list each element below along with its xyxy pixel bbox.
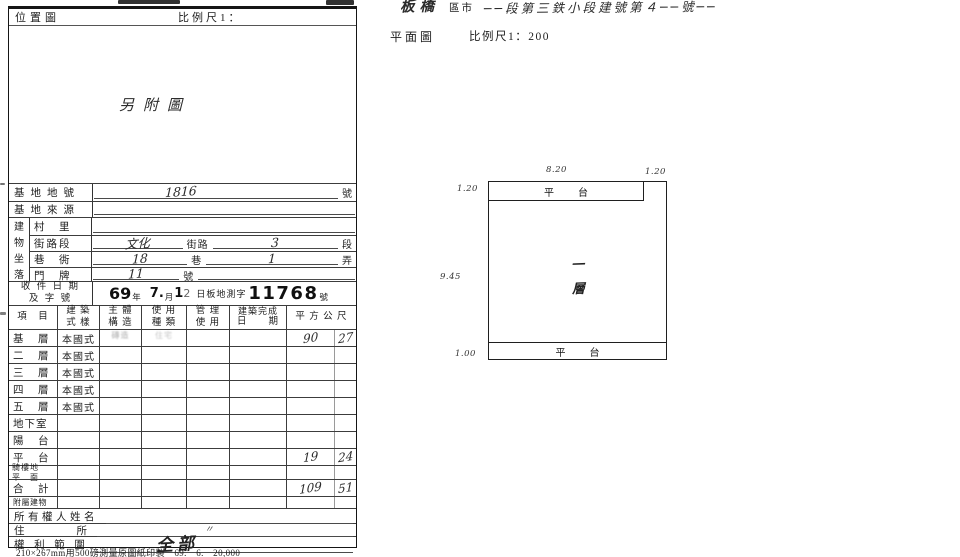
scan-artifact [326,0,354,5]
lane-label: 巷 衖 [30,252,92,267]
empty-cell [99,381,141,397]
floor-plan-label: 平面圖 [390,28,435,45]
empty-cell [229,449,286,465]
faint-stamp: 磚造 [112,330,130,341]
scan-artifact [0,183,5,185]
receipt-value-area: 69 年 7. 月 1 2 日板地測字 11768 號 [93,282,356,305]
street-value-area: 文化 街路 3 段 [92,236,356,251]
street-name-handwritten: 文化 [125,232,151,253]
header-text: 使 用 [152,306,176,317]
empty-cell [286,432,334,448]
empty-cell [186,398,229,414]
fill-in-line [94,202,355,215]
table-row-arcade: 騎樓地平 面 [9,465,356,479]
floor-label-char: 層 [571,278,585,297]
dimension-bottom-strip-height: 1.00 [455,349,476,359]
item-cell: 三 層 [9,364,57,380]
fill-in-line [106,509,353,524]
village-label: 村 里 [30,218,92,235]
owner-name-label: 所有權人姓名 [9,509,98,523]
header-text: 日 期 [237,317,279,328]
empty-cell [186,432,229,448]
building-location-group: 建 物 坐 落 村 里 街路段 文化 街路 3 段 [9,217,356,281]
receipt-label-line1: 收 件 日 期 [21,282,80,294]
style-value: 本國式 [62,399,95,414]
empty-cell [229,347,286,363]
dimension-top-width: 8.20 [546,165,567,175]
empty-cell [286,364,334,380]
street-print-label: 街路 [184,236,212,251]
plan-title-line: 板橋 區市 ──段第三鉄小段建號第４──號── [400,0,718,16]
street-section-unit: 段 [339,236,356,251]
location-map-header-row: 位置圖 比例尺1： [9,9,356,26]
style-cell: 本國式 [57,330,99,346]
top-platform-label: 平 台 [537,184,595,199]
item-cell: 附屬建物 [9,497,57,508]
empty-cell [334,466,356,479]
table-row-floor3: 三 層 本國式 [9,363,356,380]
site-source-value-area [93,202,356,217]
building-location-group-label: 建 物 坐 落 [9,218,30,281]
area-value-handwritten: 90 [303,330,318,347]
location-map-area: 另附圖 [9,26,356,183]
site-source-label: 基地來源 [9,202,93,217]
style-cell: 本國式 [57,364,99,380]
empty-cell [186,330,229,346]
header-text: 項 目 [17,312,49,323]
dimension-top-right-width: 1.20 [645,167,666,177]
header-text: 建 築 [66,306,90,317]
receipt-label: 收 件 日 期 及 字 號 [9,282,93,305]
use-type-cell: 住宅 [141,330,186,346]
empty-cell [99,398,141,414]
header-completion-date: 建築完成日 期 [229,306,286,329]
item-cell: 騎樓地平 面 [9,466,57,479]
fill-in-line: 1 [206,252,338,265]
style-value: 本國式 [62,382,95,397]
empty-cell [286,398,334,414]
empty-cell [99,364,141,380]
scan-artifact [0,312,6,315]
empty-cell [141,381,186,397]
style-value: 本國式 [62,331,95,346]
area-dec-cell: 24 [334,449,356,465]
empty-cell [186,497,229,508]
empty-cell [57,432,99,448]
floor-label-char: 一 [570,254,584,273]
receipt-label-line2: 及 字 號 [29,294,72,306]
item-label: 地下室 [13,416,48,431]
header-square-meters: 平 方 公 尺 [286,306,356,329]
header-management: 管 理使 用 [186,306,229,329]
year-unit: 年 [132,291,141,305]
dimension-top-strip-height: 1.20 [457,184,478,194]
empty-cell [99,466,141,479]
item-label: 騎樓地 [12,463,54,472]
header-text: 主 體 [108,306,132,317]
receipt-row: 收 件 日 期 及 字 號 69 年 7. 月 1 2 日板地測字 11768 … [9,281,356,305]
item-cell: 五 層 [9,398,57,414]
site-lot-value-handwritten: 1816 [165,182,197,199]
floor-plan-drawing: 平 台 一 層 平 台 [488,181,667,360]
lane-value-area: 18 巷 1 弄 [92,252,356,267]
empty-cell [57,480,99,496]
ditto-mark-handwritten: 〃 [205,522,214,535]
fill-in-line: 〃 [97,524,353,537]
empty-cell [99,347,141,363]
area-value-handwritten: 51 [338,480,353,497]
lane-row: 巷 衖 18 巷 1 弄 [30,251,356,267]
print-spec-footer: 210×267mm用500磅測量原圖紙印製 69. 6. 20,000 [16,546,240,557]
district-type-print: 區市 [449,0,474,15]
structure-cell: 磚造 [99,330,141,346]
header-item: 項 目 [9,306,57,329]
area-value-handwritten: 27 [338,330,353,347]
empty-cell [57,466,99,479]
area-value-handwritten: 24 [338,449,353,466]
empty-cell [229,398,286,414]
fill-in-line: 3 [213,236,338,249]
item-label: 三 層 [13,365,51,380]
scanned-building-survey-sheet: 位置圖 比例尺1： 另附圖 基地地號 1816 號 基地來源 建 物 坐 落 [0,0,960,557]
village-row: 村 里 [30,218,356,235]
site-lot-label: 基地地號 [9,184,93,201]
style-cell: 本國式 [57,398,99,414]
item-label: 二 層 [13,348,51,363]
empty-cell [334,432,356,448]
style-value: 本國式 [62,365,95,380]
header-text: 建築完成 [238,306,278,317]
empty-cell [141,415,186,431]
item-label: 五 層 [13,399,51,414]
receipt-office-text: 日板地測字 [196,287,246,300]
empty-cell [229,466,286,479]
empty-cell [229,432,286,448]
empty-cell [57,449,99,465]
receipt-doc-number-stamp: 11768 [248,283,318,304]
empty-cell [99,432,141,448]
empty-cell [186,466,229,479]
plan-scale-label: 比例尺1：200 [469,28,550,45]
empty-cell [57,497,99,508]
item-cell: 陽 台 [9,432,57,448]
empty-cell [141,466,186,479]
item-label: 附屬建物 [13,497,47,508]
floor-label-handwritten: 一 層 [570,254,585,297]
bottom-platform-strip: 平 台 [489,342,666,359]
site-lot-unit: 號 [339,185,356,200]
door-plate-row: 門 牌 11 號 [30,267,356,282]
table-row-floor1: 基 層 本國式 磚造 住宅 90 27 [9,329,356,346]
building-location-rows: 村 里 街路段 文化 街路 3 段 巷 衖 18 巷 [30,218,356,281]
empty-cell [229,381,286,397]
receipt-day-stamp-faint: 2 [183,287,190,300]
area-dec-cell: 27 [334,330,356,346]
scan-artifact [118,0,180,4]
top-platform-strip: 平 台 [489,182,644,201]
item-label: 合 計 [13,481,51,496]
empty-cell [334,398,356,414]
item-label: 陽 台 [13,433,51,448]
empty-cell [334,364,356,380]
area-value-handwritten: 19 [303,449,318,466]
fill-in-line: 1816 [94,184,338,199]
empty-cell [141,480,186,496]
lane-unit: 巷 [188,252,205,267]
dimension-body-height: 9.45 [440,272,461,282]
item-cell: 基 層 [9,330,57,346]
alley-number-handwritten: 1 [268,250,276,266]
group-label-char: 落 [14,266,24,281]
empty-cell [99,415,141,431]
empty-cell [99,497,141,508]
table-row-balcony: 陽 台 [9,431,356,448]
site-source-row: 基地來源 [9,201,356,217]
month-unit: 月 [165,291,174,305]
empty-cell [334,381,356,397]
table-row-basement: 地下室 [9,414,356,431]
receipt-month-stamp: 7. [150,286,164,301]
map-note-handwritten: 另附圖 [119,94,191,115]
empty-cell [99,449,141,465]
style-cell: 本國式 [57,347,99,363]
table-row-accessory: 附屬建物 [9,496,356,508]
group-label-char: 建 [14,218,24,233]
scale-label: 比例尺1： [178,9,243,25]
street-section-handwritten: 3 [271,234,279,250]
fill-in-line [93,218,355,233]
alley-unit: 弄 [339,252,356,267]
section-lot-handwritten: ──段第三鉄小段建號第４──號── [484,0,718,17]
receipt-number-unit: 號 [319,291,328,305]
lane-number-handwritten: 18 [132,250,148,266]
item-cell: 四 層 [9,381,57,397]
plan-subtitle-line: 平面圖 比例尺1：200 [390,28,550,45]
fill-in-line: 文化 [93,236,183,249]
header-text: 式 樣 [66,318,90,329]
table-row-floor4: 四 層 本國式 [9,380,356,397]
style-cell: 本國式 [57,381,99,397]
item-label: 基 層 [13,331,51,346]
receipt-day-stamp: 1 [174,286,183,301]
group-label-char: 物 [14,234,24,249]
group-label-char: 坐 [14,250,24,265]
empty-cell [186,364,229,380]
header-text: 平 方 公 尺 [295,312,347,323]
site-lot-row: 基地地號 1816 號 [9,183,356,201]
header-use-type: 使 用種 類 [141,306,186,329]
area-int-cell: 19 [286,449,334,465]
door-plate-value-area: 11 號 [92,268,356,282]
street-label: 街路段 [30,236,92,251]
empty-cell [229,364,286,380]
empty-cell [286,497,334,508]
empty-cell [57,415,99,431]
empty-cell [99,480,141,496]
receipt-year-stamp: 69 [109,284,131,303]
empty-cell [334,415,356,431]
table-row-floor5: 五 層 本國式 [9,397,356,414]
item-cell: 地下室 [9,415,57,431]
owner-name-row: 所有權人姓名 [9,508,356,523]
door-plate-label: 門 牌 [30,268,92,282]
empty-cell [141,449,186,465]
area-int-cell: 109 [286,480,334,496]
empty-cell [286,415,334,431]
header-text: 種 類 [152,318,176,329]
empty-cell [286,381,334,397]
empty-cell [334,347,356,363]
empty-cell [141,497,186,508]
empty-cell [229,415,286,431]
empty-cell [186,449,229,465]
address-label: 住 所 [9,524,89,536]
table-row-total: 合 計 109 51 [9,479,356,496]
item-label: 四 層 [13,382,51,397]
fill-in-line: 18 [93,252,187,265]
empty-cell [229,330,286,346]
header-text: 使 用 [196,318,220,329]
area-value-handwritten: 109 [299,479,322,497]
header-text: 管 理 [196,306,220,317]
header-structure: 主 體構 造 [99,306,141,329]
fill-in-line: 11 [93,268,179,280]
district-name-handwritten: 板橋 [400,0,439,16]
empty-cell [141,398,186,414]
empty-cell [286,347,334,363]
empty-cell [229,497,286,508]
header-text: 構 造 [108,318,132,329]
empty-cell [229,480,286,496]
header-style: 建 築式 樣 [57,306,99,329]
area-int-cell: 90 [286,330,334,346]
street-row: 街路段 文化 街路 3 段 [30,235,356,251]
empty-cell [186,415,229,431]
table-header-row: 項 目 建 築式 樣 主 體構 造 使 用種 類 管 理使 用 建築完成日 期 … [9,305,356,329]
bottom-platform-label: 平 台 [549,344,607,359]
fill-in-line [198,268,355,280]
item-cell: 二 層 [9,347,57,363]
empty-cell [141,364,186,380]
item-cell: 合 計 [9,480,57,496]
table-row-floor2: 二 層 本國式 [9,346,356,363]
style-value: 本國式 [62,348,95,363]
empty-cell [186,381,229,397]
area-dec-cell: 51 [334,480,356,496]
building-survey-form: 位置圖 比例尺1： 另附圖 基地地號 1816 號 基地來源 建 物 坐 落 [8,6,357,548]
empty-cell [334,497,356,508]
empty-cell [141,432,186,448]
empty-cell [286,466,334,479]
empty-cell [141,347,186,363]
door-number-handwritten: 11 [128,265,144,281]
location-map-label: 位置圖 [15,9,60,25]
empty-cell [186,347,229,363]
empty-cell [186,480,229,496]
site-lot-value-area: 1816 號 [93,184,356,201]
faint-stamp: 住宅 [155,330,173,341]
table-row-platform: 平 台 19 24 [9,448,356,465]
